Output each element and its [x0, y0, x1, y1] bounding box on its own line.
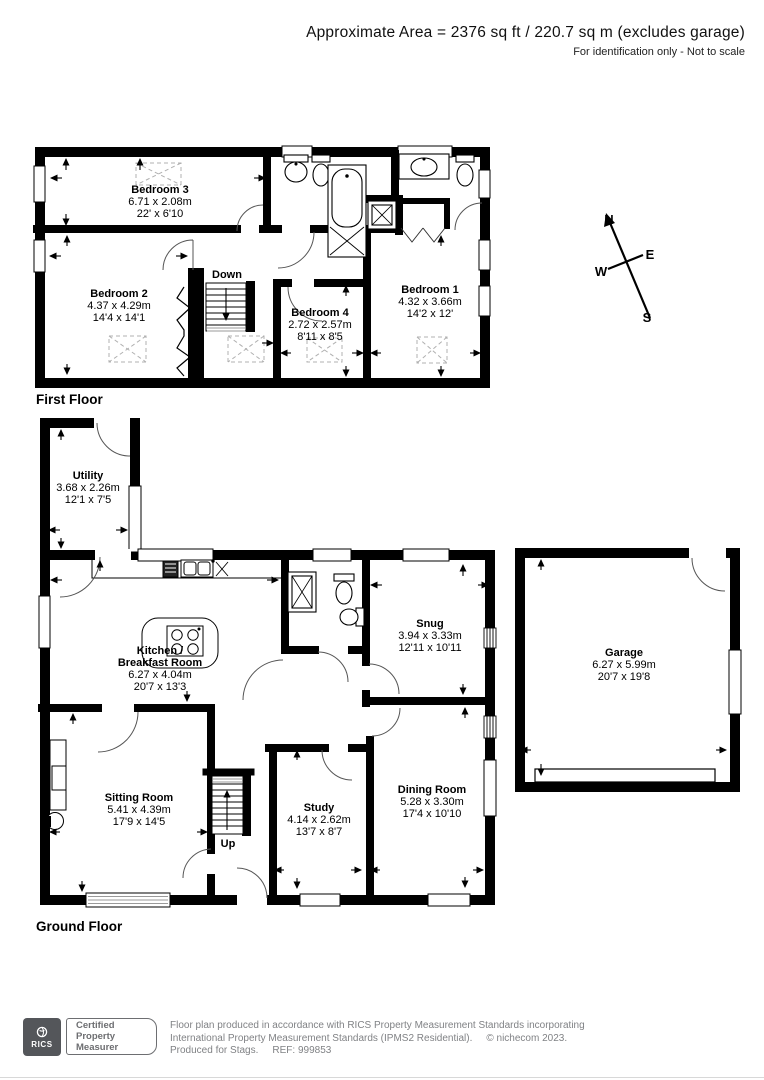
- footer-disclaimer: Floor plan produced in accordance with R…: [170, 1018, 585, 1058]
- footer-produced-for: Produced for Stags.: [170, 1045, 258, 1056]
- rics-logo: RICS: [23, 1018, 61, 1056]
- badge-line: Measurer: [76, 1042, 156, 1053]
- dining-name: Dining Room: [398, 784, 467, 796]
- rics-wordmark: RICS: [31, 1040, 53, 1049]
- rics-lion-icon: [34, 1026, 50, 1039]
- dining-metric: 5.28 x 3.30m: [400, 796, 464, 808]
- badge-line: Certified: [76, 1020, 156, 1031]
- snug-metric: 3.94 x 3.33m: [398, 630, 462, 642]
- utility-imperial: 12'1 x 7'5: [65, 494, 111, 506]
- garage-imperial: 20'7 x 19'8: [598, 671, 651, 683]
- kitchen-name-2: Breakfast Room: [118, 657, 203, 669]
- sitting-name: Sitting Room: [105, 792, 174, 804]
- snug-name: Snug: [416, 618, 444, 630]
- kitchen-name-1: Kitchen /: [137, 645, 183, 657]
- room-label-bedroom-1: Bedroom 1 4.32 x 3.66m 14'2 x 12': [398, 284, 462, 320]
- study-imperial: 13'7 x 8'7: [296, 826, 342, 838]
- footer: RICS Certified Property Measurer Floor p…: [23, 1018, 585, 1058]
- vanity-bowl: [411, 158, 437, 176]
- footer-line-1: Floor plan produced in accordance with R…: [170, 1020, 585, 1033]
- dining-imperial: 17'4 x 10'10: [403, 808, 462, 820]
- kitchen-imperial: 20'7 x 13'3: [134, 681, 187, 693]
- compass-north: N: [604, 212, 613, 227]
- room-label-dining-room: Dining Room 5.28 x 3.30m 17'4 x 10'10: [398, 784, 467, 820]
- compass-west: W: [595, 264, 608, 279]
- stairs-down-label: Down: [212, 269, 242, 281]
- bedroom-3-metric: 6.71 x 2.08m: [128, 196, 192, 208]
- ground-floor-plan: Utility 3.68 x 2.26m 12'1 x 7'5 Kitchen …: [36, 418, 741, 934]
- study-name: Study: [304, 802, 335, 814]
- stairs-up: [212, 776, 243, 834]
- sink: [284, 155, 308, 162]
- stairs-up-label: Up: [221, 838, 236, 850]
- stairs-down: [206, 283, 246, 331]
- snug-imperial: 12'11 x 10'11: [398, 642, 461, 654]
- page-bottom-rule: [0, 1077, 764, 1078]
- compass-east: E: [646, 247, 655, 262]
- utility-name: Utility: [73, 470, 104, 482]
- utility-metric: 3.68 x 2.26m: [56, 482, 120, 494]
- compass-south: S: [643, 310, 652, 325]
- compass: N E W S: [595, 212, 655, 325]
- room-label-sitting-room: Sitting Room 5.41 x 4.39m 17'9 x 14'5: [105, 792, 174, 828]
- first-floor-label: First Floor: [36, 392, 103, 407]
- toilet-bowl: [313, 164, 329, 186]
- bedroom-1-name: Bedroom 1: [401, 284, 458, 296]
- bedroom-1-metric: 4.32 x 3.66m: [398, 296, 462, 308]
- sitting-metric: 5.41 x 4.39m: [107, 804, 171, 816]
- bedroom-4-metric: 2.72 x 2.57m: [288, 319, 352, 331]
- footer-line-3: Produced for Stags.REF: 999853: [170, 1045, 585, 1058]
- bedroom-2-name: Bedroom 2: [90, 288, 147, 300]
- room-label-bedroom-4: Bedroom 4 2.72 x 2.57m 8'11 x 8'5: [288, 307, 352, 343]
- bedroom-3-name: Bedroom 3: [131, 184, 188, 196]
- room-label-bedroom-2: Bedroom 2 4.37 x 4.29m 14'4 x 14'1: [87, 288, 151, 324]
- bedroom-2-metric: 4.37 x 4.29m: [87, 300, 151, 312]
- badge-line: Property: [76, 1031, 156, 1042]
- wall-chunk: [188, 268, 204, 378]
- footer-line-2: International Property Measurement Stand…: [170, 1033, 585, 1046]
- toilet-cistern: [312, 155, 330, 162]
- first-floor-plan: Bedroom 3 6.71 x 2.08m 22' x 6'10 Bedroo…: [34, 146, 490, 407]
- basin-bowl: [340, 609, 358, 625]
- garage-door: [535, 769, 715, 782]
- footer-standards-text: International Property Measurement Stand…: [170, 1033, 472, 1044]
- room-label-bedroom-3: Bedroom 3 6.71 x 2.08m 22' x 6'10: [128, 184, 192, 220]
- bedroom-4-name: Bedroom 4: [291, 307, 349, 319]
- toilet-bowl: [336, 582, 352, 604]
- bedroom-3-imperial: 22' x 6'10: [137, 208, 183, 220]
- bedroom-2-imperial: 14'4 x 14'1: [93, 312, 146, 324]
- garage-name: Garage: [605, 647, 643, 659]
- kitchen-metric: 6.27 x 4.04m: [128, 669, 192, 681]
- footer-ref: REF: 999853: [272, 1045, 331, 1056]
- ground-floor-label: Ground Floor: [36, 919, 123, 934]
- toilet-cistern: [334, 574, 354, 581]
- study-metric: 4.14 x 2.62m: [287, 814, 351, 826]
- floorplan-page: Approximate Area = 2376 sq ft / 220.7 sq…: [0, 0, 764, 1080]
- toilet-bowl: [457, 164, 473, 186]
- sitting-imperial: 17'9 x 14'5: [113, 816, 166, 828]
- floorplan-drawing: Bedroom 3 6.71 x 2.08m 22' x 6'10 Bedroo…: [0, 0, 764, 1080]
- bedroom-1-imperial: 14'2 x 12': [407, 308, 453, 320]
- wall-chunk: [246, 281, 255, 332]
- footer-copyright: © nichecom 2023.: [486, 1033, 567, 1044]
- garage-metric: 6.27 x 5.99m: [592, 659, 656, 671]
- certified-property-measurer-badge: Certified Property Measurer: [66, 1018, 157, 1055]
- bedroom-4-imperial: 8'11 x 8'5: [297, 331, 343, 343]
- bay-window: [86, 893, 170, 907]
- toilet-cistern: [456, 155, 474, 162]
